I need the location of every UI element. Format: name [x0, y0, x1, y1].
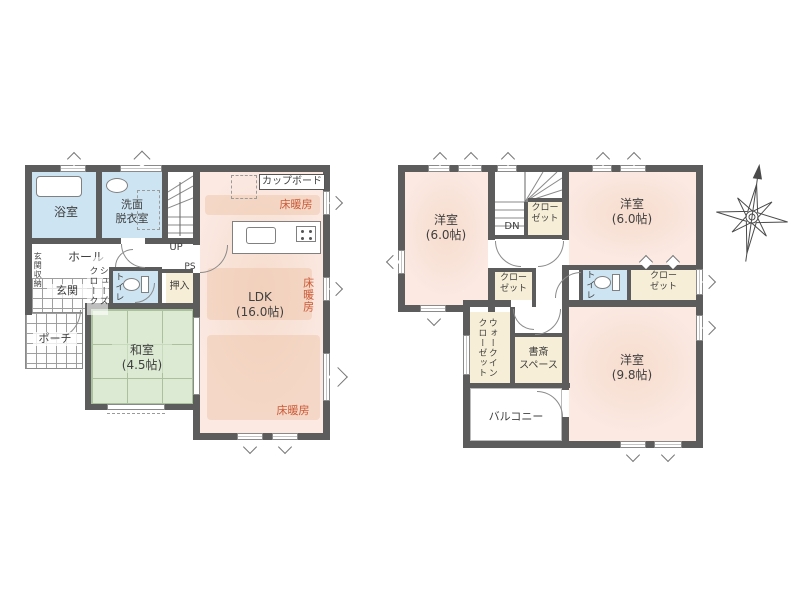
window-vent-icon [427, 312, 441, 326]
sliding-door [193, 317, 200, 395]
staircase-1f [168, 172, 193, 238]
door-arc [555, 272, 581, 298]
window-vent-icon [243, 440, 257, 454]
window-vent-icon [661, 448, 675, 462]
toilet-bowl [123, 278, 140, 291]
window [463, 335, 470, 375]
window-vent-icon [433, 152, 447, 166]
shoe-cloak-label: シューズ クローク [87, 257, 108, 315]
closet-upper-label: クロー ゼット [527, 203, 563, 226]
walkin-closet-label: ウォークイン クローゼット [476, 315, 497, 381]
window-vent-icon [278, 440, 292, 454]
cupboard-label: カップボード [259, 174, 325, 190]
window-vent-icon [627, 152, 641, 166]
door-arc [115, 249, 133, 267]
washroom-label: 洗面 脱衣室 [102, 198, 162, 226]
dn-label: DN [498, 221, 526, 234]
porch-label: ポーチ [33, 332, 77, 346]
window-vent-icon [702, 275, 716, 289]
entrance-label: 玄関 [47, 284, 87, 298]
toilet-label-1f: トイレ [113, 271, 123, 303]
window-vent-icon [626, 448, 640, 462]
stairs-up-icon [168, 172, 193, 238]
window-vent-icon [596, 152, 610, 166]
window-shutter-line [107, 413, 165, 414]
first-floor-plan: 浴室 洗面 脱衣室 玄関収納 ホール 玄関 シューズ クローク トイレ 押入 P… [25, 165, 330, 440]
bathtub [36, 176, 82, 197]
closet-center-label: クロー ゼット [494, 273, 533, 296]
door-arc [495, 241, 521, 267]
closet-right-label: クロー ゼット [636, 271, 691, 294]
toilet-bowl [594, 276, 611, 289]
window-vent-icon [702, 321, 716, 335]
window [107, 404, 165, 410]
balcony-label: バルコニー [480, 410, 552, 424]
toilet-label-2f: トイレ [584, 269, 594, 300]
window-vent-icon [329, 196, 343, 210]
entrance-storage-label: 玄関収納 [33, 245, 42, 295]
door-arc [538, 241, 564, 267]
stove-burners-icon [301, 230, 304, 233]
window-vent-icon [67, 152, 81, 166]
compass-north-icon [705, 162, 800, 267]
window-vent-icon [328, 367, 348, 387]
door-arc [513, 309, 534, 330]
ps-label: PS [177, 262, 203, 273]
ldk-label: LDK (16.0帖) [227, 290, 293, 320]
stove [296, 226, 316, 242]
oshiire-label: 押入 [166, 281, 193, 294]
window-vent-icon [501, 152, 515, 166]
washbasin [106, 178, 128, 193]
up-label: UP [161, 242, 191, 255]
window-vent-icon [329, 282, 343, 296]
floor-heating-label: 床暖房 [271, 198, 321, 212]
study-space-label: 書斎 スペース [514, 347, 563, 372]
window-vent-icon [464, 152, 478, 166]
second-floor-plan: 洋室 (6.0帖) 洋室 (6.0帖) 洋室 (9.8帖) DN クロー ゼット… [398, 165, 703, 448]
floor-heating-label: 床暖房 [301, 272, 314, 318]
bedroom-1-label: 洋室 (6.0帖) [416, 213, 476, 243]
bedroom-2-label: 洋室 (6.0帖) [602, 197, 662, 227]
bathroom-label: 浴室 [41, 205, 91, 220]
floorplan-canvas: 浴室 洗面 脱衣室 玄関収納 ホール 玄関 シューズ クローク トイレ 押入 P… [0, 0, 800, 600]
toilet-tank [612, 274, 620, 291]
floor-heating-label: 床暖房 [268, 404, 318, 418]
kitchen-sink [246, 227, 276, 244]
bedroom-3-label: 洋室 (9.8帖) [602, 353, 662, 383]
toilet-tank [141, 276, 149, 293]
door-arc [535, 309, 561, 335]
washitsu-label: 和室 (4.5帖) [112, 343, 172, 373]
refrigerator-space [231, 175, 257, 199]
